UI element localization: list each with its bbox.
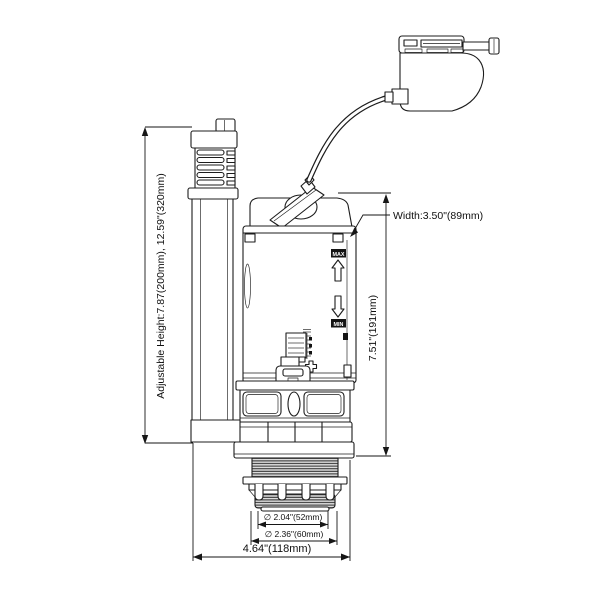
max-label: MAX bbox=[333, 252, 345, 258]
tube-base-bracket bbox=[191, 420, 240, 442]
diagram-canvas: MAX MIN bbox=[0, 0, 600, 600]
valve-technical-drawing: MAX MIN bbox=[0, 0, 600, 600]
width-label: Width:3.50"(89mm) bbox=[393, 210, 483, 222]
dim-inner-diameter: ∅ 2.04"(52mm) bbox=[258, 511, 328, 529]
base-window-left bbox=[243, 392, 281, 416]
min-label: MIN bbox=[334, 322, 344, 328]
outlet-thread-ring bbox=[255, 494, 335, 508]
push-button-unit bbox=[385, 36, 499, 111]
flush-valve-body: MAX MIN bbox=[243, 175, 356, 388]
threaded-shank bbox=[252, 458, 338, 477]
outlet-gasket bbox=[261, 507, 329, 511]
fill-valve-tube bbox=[188, 119, 238, 420]
overall-width-label: 4.64"(118mm) bbox=[243, 543, 312, 555]
dim-width-leader: Width:3.50"(89mm) bbox=[350, 210, 483, 237]
lid-clip-left bbox=[245, 234, 255, 242]
cable-connector bbox=[392, 89, 408, 104]
actuator-cable bbox=[309, 98, 386, 180]
valve-height-label: 7.51"(191mm) bbox=[367, 295, 379, 361]
adjustable-height-label: Adjustable Height:7.87(200mm), 12.59"(32… bbox=[155, 173, 167, 399]
adjustment-spring bbox=[195, 148, 235, 189]
lid-clip-right bbox=[333, 234, 343, 242]
button-stem bbox=[463, 42, 490, 50]
inner-diameter-label: ∅ 2.04"(52mm) bbox=[264, 512, 323, 522]
button-slot-small bbox=[404, 40, 417, 46]
dim-adjustable-height: Adjustable Height:7.87(200mm), 12.59"(32… bbox=[142, 127, 193, 444]
outer-diameter-label: ∅ 2.36"(60mm) bbox=[265, 529, 324, 539]
tank-flange bbox=[234, 442, 354, 458]
base-window-right bbox=[304, 392, 344, 416]
